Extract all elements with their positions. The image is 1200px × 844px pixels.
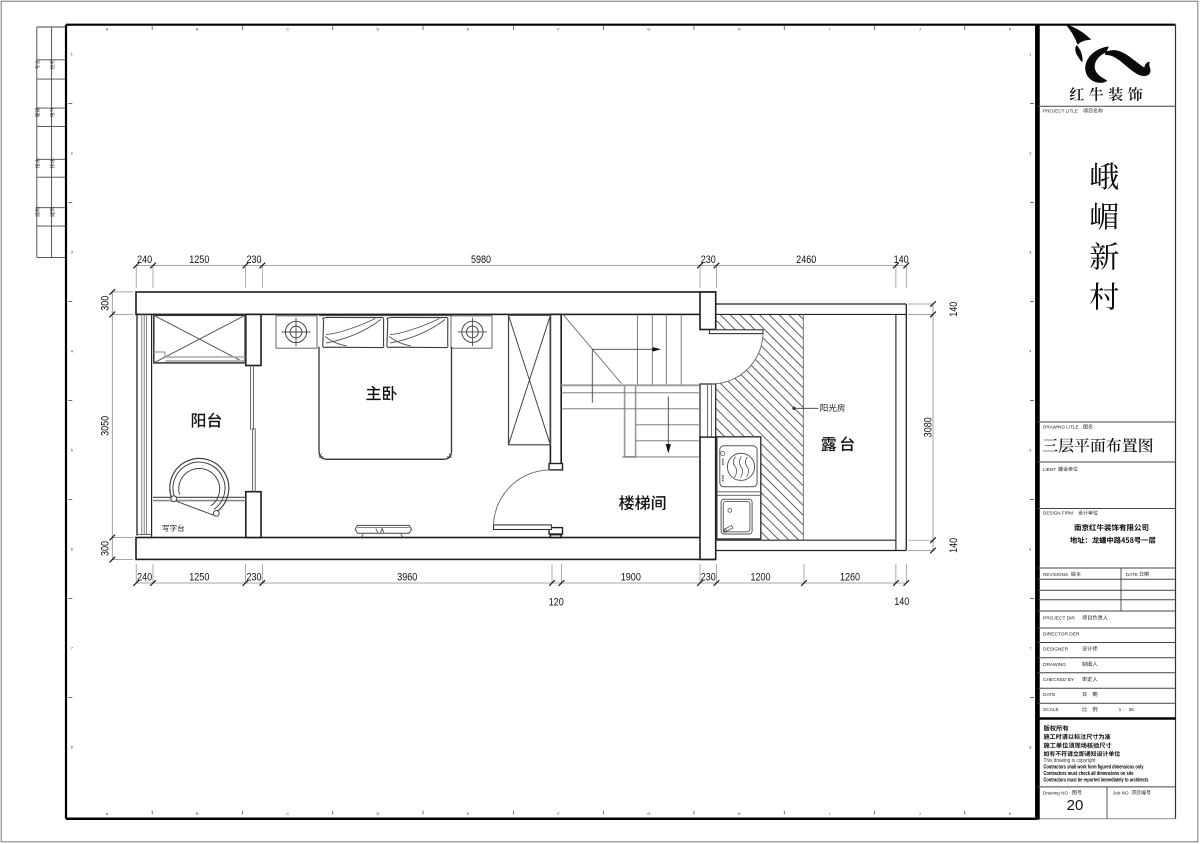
svg-text:230: 230	[246, 254, 261, 266]
svg-text:SCALE: SCALE	[1043, 707, 1059, 713]
svg-text:2: 2	[1029, 151, 1031, 155]
svg-text:H: H	[738, 28, 741, 32]
svg-text:G: G	[647, 28, 650, 32]
svg-text:3: 3	[1029, 250, 1031, 254]
svg-text:8: 8	[71, 745, 73, 749]
svg-text:1250: 1250	[189, 254, 209, 266]
svg-text:240: 240	[137, 254, 152, 266]
svg-text:140: 140	[948, 538, 960, 553]
svg-text:CHECKED BY: CHECKED BY	[1043, 677, 1075, 683]
svg-text:B: B	[196, 812, 199, 816]
svg-text:Contractors shall work form fi: Contractors shall work form figured dime…	[1044, 765, 1144, 771]
svg-text:230: 230	[701, 572, 716, 584]
svg-text:7: 7	[1029, 646, 1031, 650]
svg-text:Contractors must be reported i: Contractors must be reported immediately…	[1044, 777, 1149, 783]
svg-text:230: 230	[701, 254, 716, 266]
svg-text:DATE: DATE	[1043, 692, 1055, 698]
svg-text:PROJECT DIR: PROJECT DIR	[1043, 616, 1075, 622]
svg-text:DATE: DATE	[1126, 572, 1138, 577]
svg-text:I: I	[829, 28, 830, 32]
svg-text:DESIGN FIRM: DESIGN FIRM	[1043, 511, 1073, 516]
svg-text::: :	[1123, 708, 1124, 713]
svg-text:8: 8	[1029, 745, 1031, 749]
svg-text:K: K	[1009, 812, 1012, 816]
svg-text:LIENT: LIENT	[1043, 467, 1056, 472]
svg-text:1900: 1900	[621, 572, 641, 584]
svg-text:DESIGNER: DESIGNER	[1043, 647, 1069, 653]
svg-text:1250: 1250	[189, 572, 209, 584]
svg-text:Contractors must check all dim: Contractors must check all dimensions on…	[1044, 771, 1134, 777]
svg-text:5980: 5980	[471, 254, 491, 266]
svg-text:1: 1	[1119, 707, 1122, 713]
svg-text:140: 140	[894, 254, 909, 266]
svg-text:E: E	[467, 812, 470, 816]
svg-text:20: 20	[1067, 797, 1084, 814]
svg-text:7: 7	[71, 646, 73, 650]
svg-text:6: 6	[1029, 547, 1031, 551]
svg-text:4: 4	[71, 349, 73, 353]
svg-text:C: C	[286, 28, 289, 32]
svg-text:E: E	[467, 28, 470, 32]
svg-text:300: 300	[100, 295, 112, 310]
svg-text:6: 6	[71, 547, 73, 551]
svg-text:REVISIONS: REVISIONS	[1043, 572, 1068, 577]
svg-text:A: A	[106, 812, 109, 816]
svg-text:1200: 1200	[750, 572, 770, 584]
svg-text:I: I	[829, 812, 830, 816]
svg-text:DRAWING LITLE: DRAWING LITLE	[1043, 425, 1079, 430]
svg-text:B: B	[196, 28, 199, 32]
svg-text:3080: 3080	[923, 417, 935, 437]
svg-text:3: 3	[71, 250, 73, 254]
svg-text:2: 2	[71, 151, 73, 155]
svg-text:Job NO: Job NO	[1113, 790, 1129, 795]
svg-text:35: 35	[1129, 707, 1135, 713]
svg-text:1: 1	[1029, 52, 1031, 56]
svg-text:H: H	[738, 812, 741, 816]
svg-text:1260: 1260	[840, 572, 860, 584]
svg-text:J: J	[919, 812, 921, 816]
svg-text:D: D	[377, 812, 380, 816]
svg-text:G: G	[647, 812, 650, 816]
svg-text:J: J	[919, 28, 921, 32]
svg-text:240: 240	[137, 572, 152, 584]
svg-text:Drawing NO: Drawing NO	[1043, 790, 1068, 795]
svg-text:1: 1	[71, 52, 73, 56]
svg-text:A: A	[106, 28, 109, 32]
svg-text:DRAWING: DRAWING	[1043, 662, 1066, 668]
svg-text:4: 4	[1029, 349, 1031, 353]
svg-text:PROJECT LITLE: PROJECT LITLE	[1043, 109, 1078, 114]
svg-text:This drawing is copyright: This drawing is copyright	[1044, 758, 1097, 764]
svg-text:3960: 3960	[397, 572, 417, 584]
svg-text:2460: 2460	[796, 254, 816, 266]
svg-text:DIRECTOR DER: DIRECTOR DER	[1043, 632, 1080, 638]
svg-text:300: 300	[100, 541, 112, 556]
svg-text:D: D	[377, 28, 380, 32]
svg-text:230: 230	[246, 572, 261, 584]
svg-text:5: 5	[1029, 448, 1031, 452]
svg-text:140: 140	[894, 596, 909, 608]
svg-text:120: 120	[549, 597, 564, 609]
svg-text:K: K	[1009, 28, 1012, 32]
svg-text:3050: 3050	[100, 416, 112, 436]
svg-text:C: C	[286, 812, 289, 816]
svg-text:5: 5	[71, 448, 73, 452]
svg-text:140: 140	[948, 301, 960, 316]
